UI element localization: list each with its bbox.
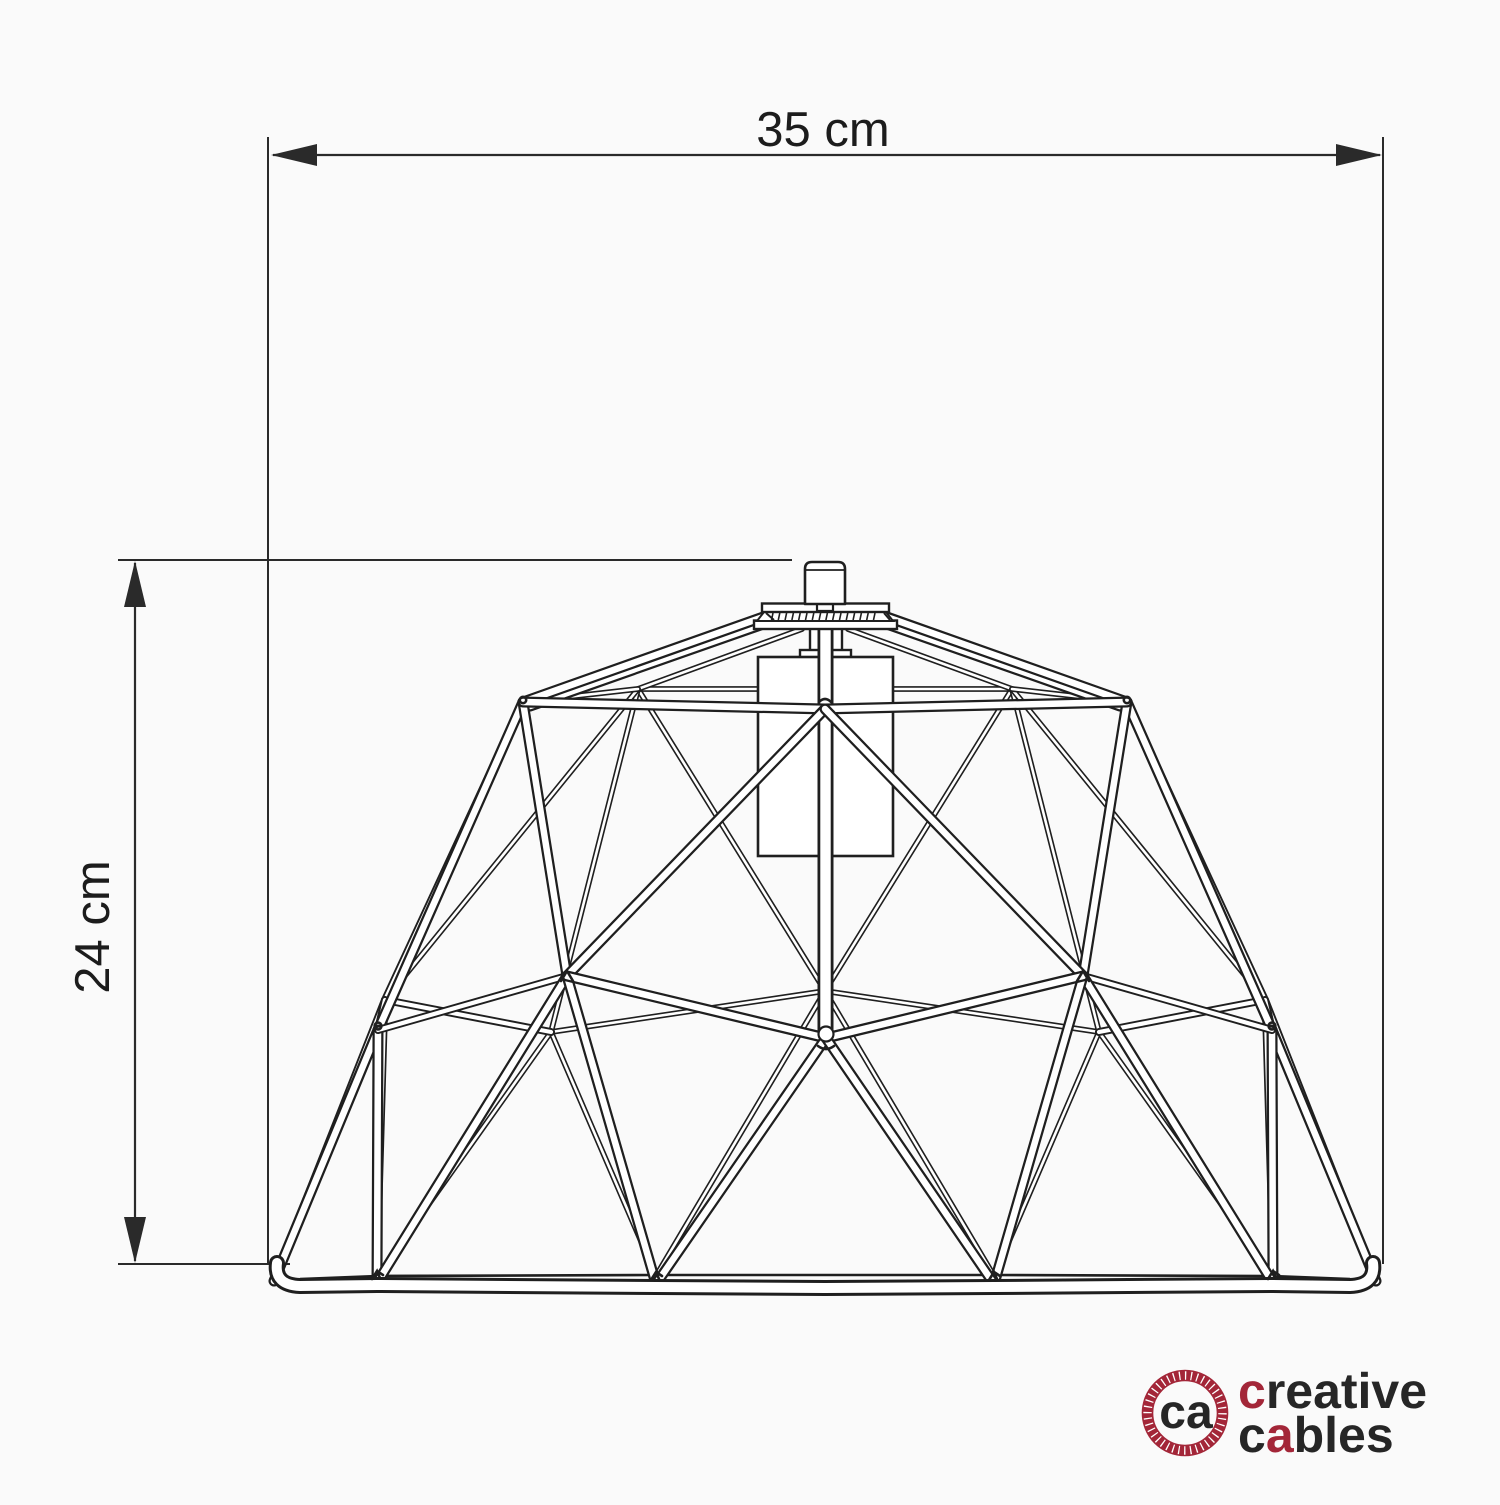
svg-text:35 cm: 35 cm [756,103,889,157]
svg-text:cables: cables [1238,1407,1394,1463]
svg-text:24 cm: 24 cm [66,860,120,993]
svg-text:ca: ca [1159,1386,1213,1439]
